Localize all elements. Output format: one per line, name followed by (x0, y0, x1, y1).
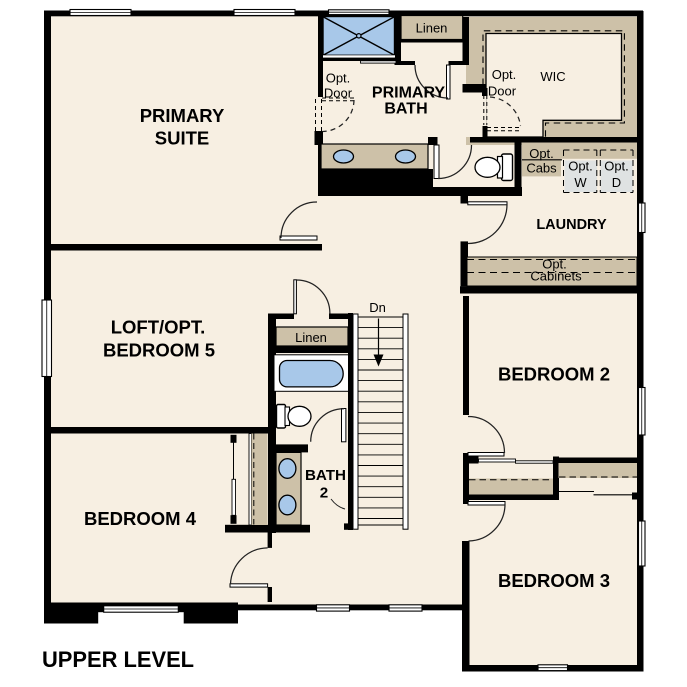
svg-text:Cabs: Cabs (526, 161, 557, 176)
svg-text:Opt.: Opt. (568, 159, 593, 174)
svg-text:Opt.: Opt. (604, 159, 629, 174)
svg-text:BATH: BATH (305, 467, 346, 484)
svg-text:Door: Door (324, 86, 353, 101)
svg-text:LOFT/OPT.: LOFT/OPT. (111, 317, 206, 338)
svg-text:Linen: Linen (416, 20, 448, 35)
svg-text:BEDROOM 2: BEDROOM 2 (498, 364, 610, 385)
svg-text:2: 2 (320, 485, 328, 502)
svg-text:SUITE: SUITE (155, 128, 209, 149)
svg-text:Opt.: Opt. (529, 146, 554, 161)
svg-text:PRIMARY: PRIMARY (372, 85, 446, 102)
svg-text:LAUNDRY: LAUNDRY (536, 217, 607, 233)
svg-text:D: D (612, 175, 621, 190)
svg-text:Dn: Dn (369, 300, 386, 315)
svg-text:Opt.: Opt. (492, 67, 517, 82)
svg-text:Opt.: Opt. (326, 71, 351, 86)
svg-text:WIC: WIC (540, 69, 565, 84)
svg-text:UPPER LEVEL: UPPER LEVEL (42, 647, 194, 672)
svg-text:BEDROOM 4: BEDROOM 4 (84, 508, 197, 529)
svg-text:PRIMARY: PRIMARY (140, 105, 225, 126)
svg-text:W: W (574, 175, 587, 190)
svg-text:BEDROOM 5: BEDROOM 5 (103, 340, 215, 361)
svg-text:Door: Door (488, 84, 517, 99)
svg-text:Linen: Linen (295, 330, 327, 345)
svg-text:Cabinets: Cabinets (530, 269, 582, 284)
svg-text:BEDROOM 3: BEDROOM 3 (498, 570, 610, 591)
svg-text:BATH: BATH (384, 101, 427, 118)
